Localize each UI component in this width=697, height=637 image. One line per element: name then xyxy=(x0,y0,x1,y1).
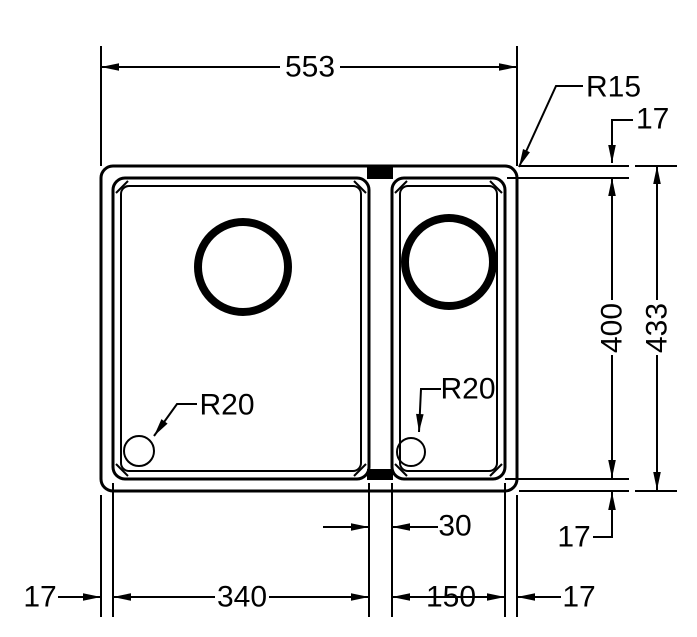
main-bowl-radius-label: R20 xyxy=(199,389,254,422)
bowl-divider-bottom xyxy=(367,469,393,480)
dim-rim-top-leader xyxy=(612,120,633,163)
dim-main-bowl-width-label: 340 xyxy=(217,581,267,614)
dim-rim-top-label: 17 xyxy=(636,103,669,136)
main-bowl-radius-leader xyxy=(154,404,197,436)
half-bowl-drain-hole xyxy=(405,218,493,306)
bowl-divider-top xyxy=(367,167,393,179)
dim-bowl-depth-label: 400 xyxy=(596,303,629,353)
dim-rim-right-label: 17 xyxy=(562,581,595,614)
dim-half-bowl-width-label: 150 xyxy=(426,581,476,614)
half-bowl-corner-radius-circle xyxy=(397,438,425,466)
main-bowl-corner-radius-circle xyxy=(124,436,154,466)
half-bowl-radius-label: R20 xyxy=(440,373,495,406)
rim-corner-radius-label: R15 xyxy=(586,71,641,104)
half-bowl-radius-leader xyxy=(419,389,441,432)
dim-rim-left-label: 17 xyxy=(23,581,56,614)
dim-overall-depth-label: 433 xyxy=(641,303,674,353)
dim-rim-bottom-label: 17 xyxy=(557,521,590,554)
rim-corner-radius-leader xyxy=(519,86,583,167)
sink-drawing-canvas: 553 R15 17 400 433 R20 R20 30 17 17 340 … xyxy=(0,0,697,637)
main-bowl-drain-hole xyxy=(198,222,288,312)
sink-technical-drawing: 553 R15 17 400 433 R20 R20 30 17 17 340 … xyxy=(0,0,697,637)
dim-overall-width-label: 553 xyxy=(285,51,335,84)
dim-bowl-gap-label: 30 xyxy=(438,510,471,543)
dim-rim-bottom-leader xyxy=(593,492,612,537)
